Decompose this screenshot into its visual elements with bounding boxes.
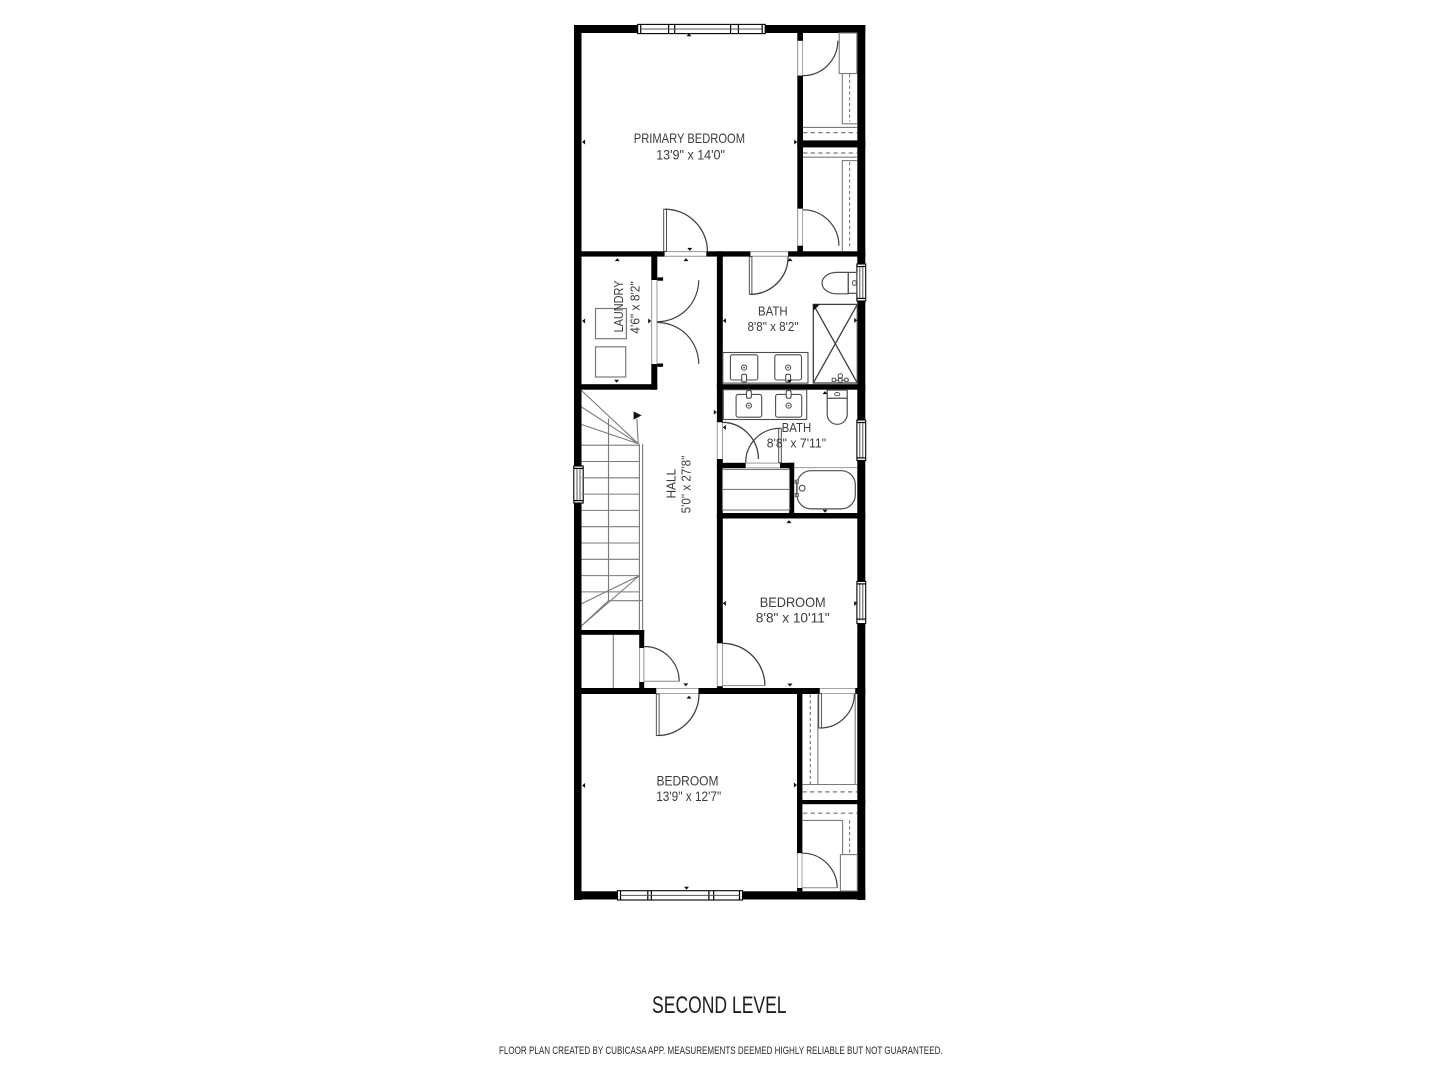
svg-text:8'8" x 7'11": 8'8" x 7'11" [767, 437, 826, 451]
svg-text:13'9" x 12'7": 13'9" x 12'7" [656, 789, 721, 804]
svg-text:8'8" x 10'11": 8'8" x 10'11" [756, 611, 830, 626]
svg-text:LAUNDRY: LAUNDRY [611, 280, 626, 332]
svg-text:BEDROOM: BEDROOM [657, 773, 719, 789]
svg-text:BEDROOM: BEDROOM [760, 594, 826, 610]
svg-text:5'0" x 27'8": 5'0" x 27'8" [680, 456, 694, 514]
svg-text:FLOOR PLAN CREATED BY CUBICASA: FLOOR PLAN CREATED BY CUBICASA APP. MEAS… [499, 1045, 943, 1057]
svg-text:PRIMARY BEDROOM: PRIMARY BEDROOM [634, 130, 745, 146]
svg-text:BATH: BATH [782, 421, 812, 435]
svg-text:8'8" x 8'2": 8'8" x 8'2" [748, 320, 799, 334]
svg-text:13'9" x 14'0": 13'9" x 14'0" [656, 147, 725, 162]
svg-text:HALL: HALL [664, 469, 678, 499]
svg-text:BATH: BATH [758, 304, 788, 318]
svg-text:SECOND LEVEL: SECOND LEVEL [652, 992, 787, 1019]
svg-text:4'6" x 8'2": 4'6" x 8'2" [627, 281, 642, 334]
